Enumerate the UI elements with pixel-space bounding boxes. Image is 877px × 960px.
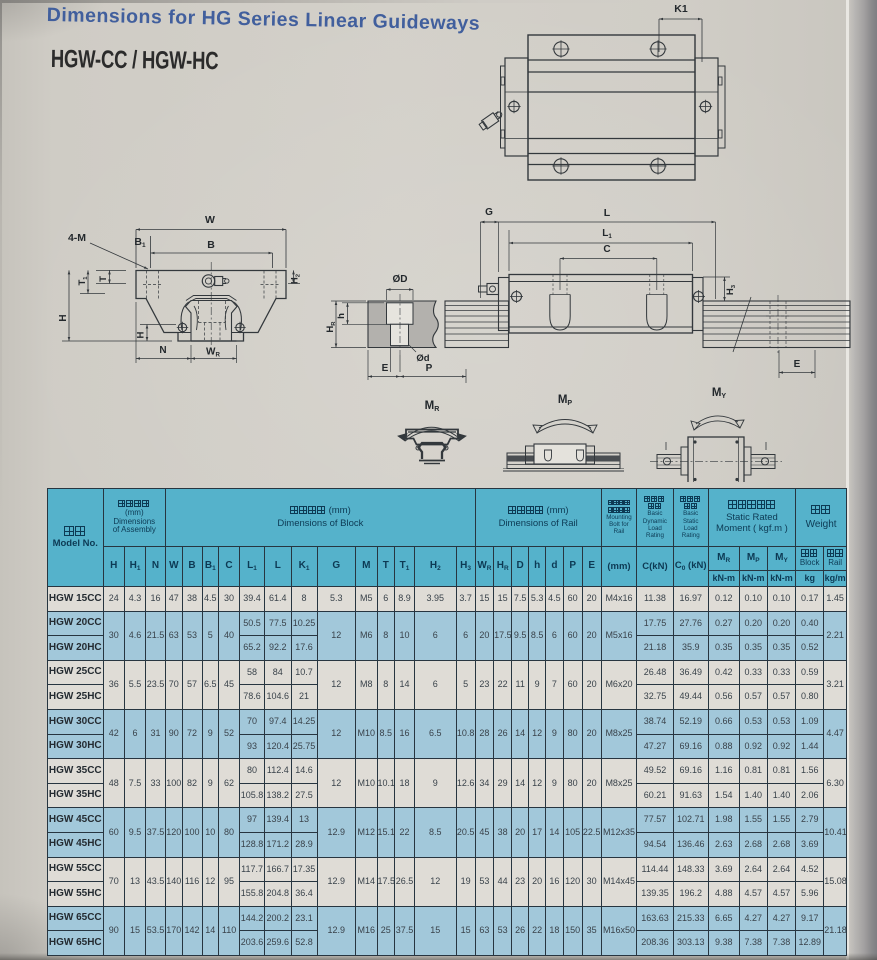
svg-text:MR: MR [425, 400, 440, 413]
svg-text:K1: K1 [674, 3, 688, 15]
svg-text:H: H [136, 331, 147, 338]
svg-text:MY: MY [712, 387, 727, 400]
svg-text:N: N [159, 345, 166, 356]
svg-text:P: P [426, 363, 433, 374]
svg-text:H3: H3 [725, 284, 737, 295]
svg-text:B1: B1 [134, 236, 146, 249]
svg-text:H: H [58, 314, 69, 321]
svg-text:4-M: 4-M [68, 232, 86, 244]
svg-text:h: h [336, 313, 347, 319]
svg-text:G: G [485, 207, 493, 218]
svg-text:L1: L1 [602, 228, 612, 240]
svg-text:H2: H2 [290, 273, 302, 284]
svg-text:MP: MP [558, 394, 573, 407]
svg-text:T1: T1 [77, 276, 89, 286]
svg-text:HR: HR [325, 321, 337, 333]
svg-text:W: W [205, 214, 215, 226]
svg-text:L: L [604, 207, 611, 219]
svg-text:E: E [794, 359, 801, 370]
svg-text:ØD: ØD [393, 274, 408, 285]
svg-text:C: C [603, 244, 610, 255]
svg-text:T: T [98, 276, 109, 282]
svg-text:B: B [207, 239, 215, 251]
svg-text:WR: WR [206, 347, 220, 359]
svg-text:E: E [382, 363, 389, 374]
